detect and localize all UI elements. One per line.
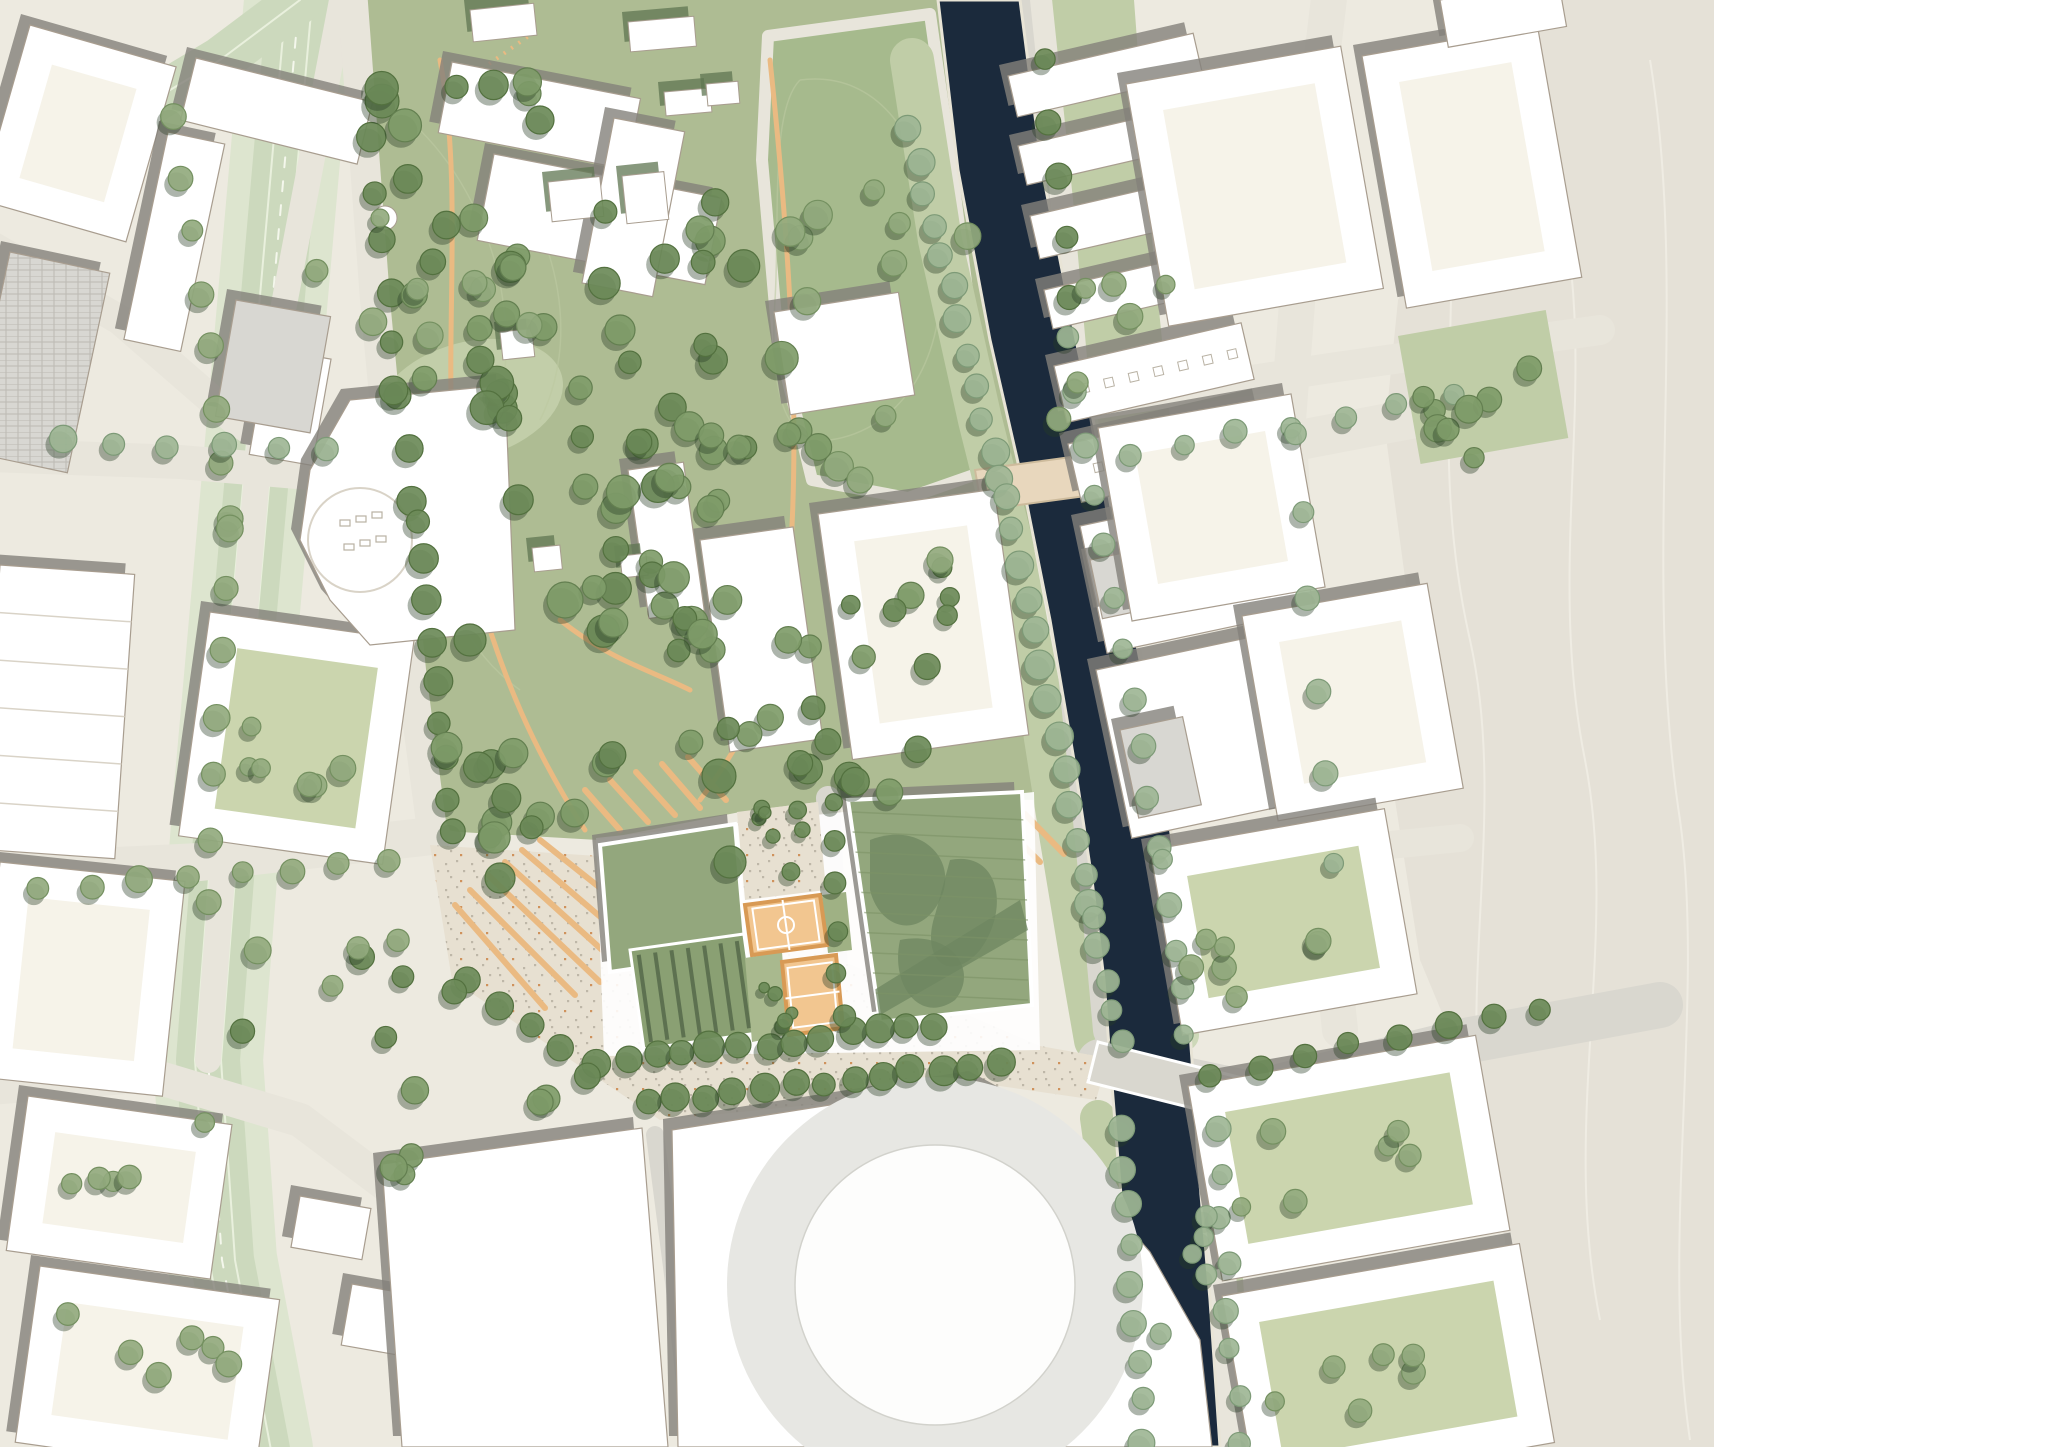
site-plan-svg: [0, 0, 2048, 1447]
courtyard: [13, 897, 150, 1061]
courtyard: [1279, 620, 1426, 783]
building: [216, 300, 331, 433]
margin-layer: [1714, 0, 2048, 1447]
arena-west-hall: [382, 1128, 668, 1447]
courtyard: [1135, 431, 1288, 584]
courtyard: [215, 648, 378, 828]
courtyard: [1163, 83, 1346, 289]
masterplan-figure: [0, 0, 2048, 1447]
terrace-building: [0, 554, 135, 859]
page-margin: [1714, 0, 2048, 1447]
